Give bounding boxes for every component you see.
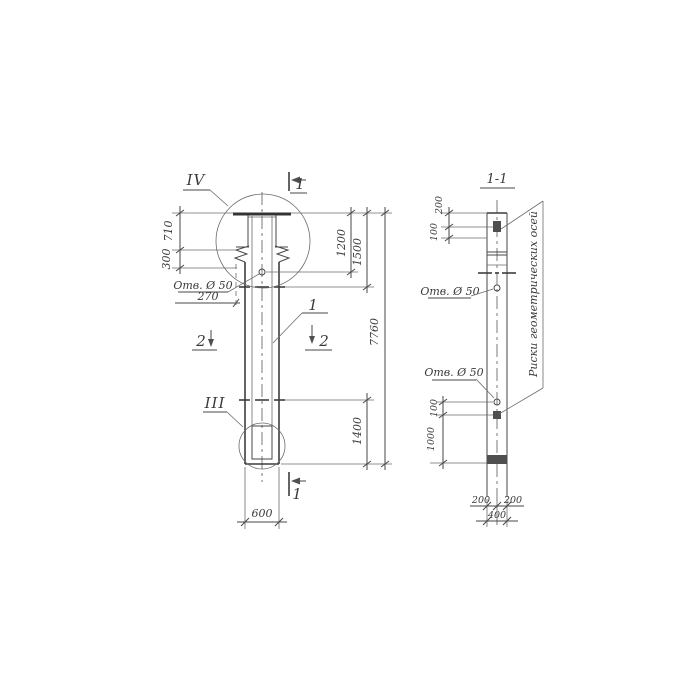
dim-7760: 7760 — [368, 318, 381, 346]
axis-mark-plate — [493, 411, 501, 419]
dim-200-bottom-left: 200 — [471, 495, 490, 506]
dim-bottom-width: 600 — [237, 467, 287, 529]
dims-right: 1200 1500 1400 7760 — [266, 207, 392, 470]
dims-left: 710 300 — [160, 206, 237, 274]
dim-1400: 1400 — [351, 417, 364, 445]
section-view: 1-1 Отв. Ø 50 — [420, 172, 543, 527]
detail-iv-text: IV — [186, 171, 207, 189]
dim-600: 600 — [252, 507, 273, 520]
technical-drawing: IV III 1 1 2 — [0, 0, 700, 700]
dim-1500: 1500 — [351, 238, 364, 266]
dim-200-bottom-right: 200 — [503, 495, 522, 506]
dim-100-top: 100 — [429, 223, 440, 241]
hole-callout-upper: Отв. Ø 50 — [420, 285, 493, 298]
dim-1200: 1200 — [335, 229, 348, 257]
axes-note: Риски геометрических осей — [499, 201, 543, 414]
axes-note-text: Риски геометрических осей — [527, 211, 540, 378]
section-marker-2-left: 2 — [192, 330, 217, 350]
dims-section-top: 200 100 — [429, 196, 493, 244]
dim-300: 300 — [160, 249, 173, 270]
detail-label-iii: III — [203, 394, 243, 427]
detail-circle-top — [216, 194, 310, 288]
dim-100-mid: 100 — [429, 399, 440, 417]
detail-iii-text: III — [204, 394, 226, 412]
item-number-text: 1 — [308, 296, 318, 314]
hole-label-lower: Отв. Ø 50 — [424, 366, 483, 379]
section-marker-1-bottom: 1 — [289, 472, 306, 503]
drawing-sheet: IV III 1 1 2 — [0, 0, 700, 700]
front-view: IV III 1 1 2 — [160, 171, 392, 529]
section-2-left-text: 2 — [195, 332, 206, 350]
section-2-right-text: 2 — [318, 332, 329, 350]
dim-710: 710 — [162, 221, 175, 242]
dim-1000: 1000 — [426, 427, 437, 451]
dim-400: 400 — [487, 510, 506, 521]
section-marker-1-top: 1 — [289, 172, 307, 193]
dim-200-top: 200 — [434, 196, 445, 215]
hole-label-upper: Отв. Ø 50 — [420, 285, 479, 298]
dim-270: 270 — [197, 290, 219, 303]
section-marker-2-right: 2 — [305, 325, 332, 350]
detail-label-iv: IV — [183, 171, 228, 206]
hole-callout-lower: Отв. Ø 50 — [424, 366, 494, 398]
dims-section-lower: 100 1000 — [426, 396, 493, 469]
section-1-top-text: 1 — [295, 175, 305, 193]
section-title: 1-1 — [480, 172, 515, 188]
section-1-bottom-text: 1 — [292, 485, 302, 503]
embedded-plate-mark — [493, 221, 501, 232]
section-title-text: 1-1 — [487, 172, 508, 187]
shaft-end-band — [487, 455, 507, 464]
